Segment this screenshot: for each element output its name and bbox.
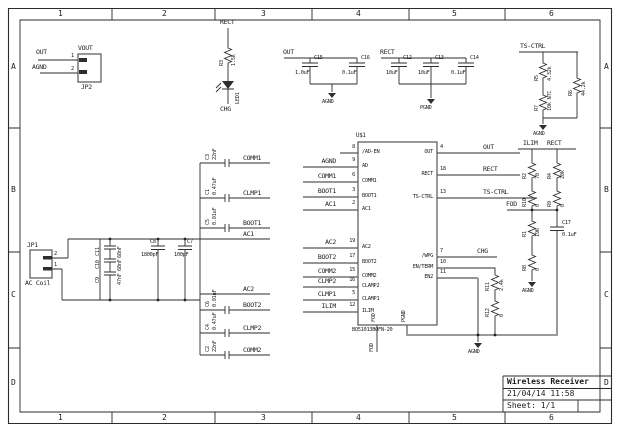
ic-pin-name: AC2	[362, 245, 371, 250]
cap-value-c5: 0.01uF	[213, 208, 218, 225]
gnd-label-agnd: AGND	[322, 100, 334, 105]
cap-ref-c8: C8	[150, 240, 156, 245]
pin-number: 17	[341, 254, 355, 259]
pin-number: 4	[440, 145, 443, 150]
net-label-out: OUT	[36, 49, 47, 56]
ic-pin-name: OUT	[385, 150, 433, 155]
net-label-agnd: AGND	[32, 64, 46, 71]
cap-ref-c10: C10	[96, 260, 101, 269]
resistor-ref-r9: R9	[548, 201, 553, 207]
net-label-rect: RECT	[547, 140, 561, 147]
cap-value-c3: 22nF	[213, 148, 218, 160]
pin-number: 3	[341, 188, 355, 193]
frame-row-label: D	[604, 379, 609, 387]
gnd-label-agnd: AGND	[533, 132, 545, 137]
ic-ref: U$1	[356, 134, 366, 140]
resistor-value-r9: 0	[561, 204, 566, 207]
resistor-ref-r12: R12	[486, 308, 491, 317]
net-label-out: OUT	[283, 49, 294, 56]
ic-pin-name: COMM2	[362, 274, 376, 279]
net-label-boot2: BOOT2	[296, 254, 336, 261]
frame-row-label: B	[604, 186, 609, 194]
cap-value-c10: 68nF	[118, 259, 123, 271]
cap-ref-c3: C3	[206, 154, 211, 160]
ic-pin-name: CLAMP2	[362, 284, 379, 289]
resistor-value-r5: 4.32k	[548, 67, 553, 81]
led-symbol	[222, 81, 234, 89]
net-label-rect: RECT	[220, 19, 234, 26]
pin-number: 13	[440, 190, 446, 195]
net-label-fod: FOD	[370, 343, 375, 352]
cap-value-c7: 100pF	[174, 253, 188, 258]
pin-number: 2	[71, 67, 74, 72]
led-ref-led1: LED1	[236, 92, 241, 104]
net-label-rect: RECT	[483, 166, 497, 173]
cap-value-c17: 0.1uF	[562, 233, 576, 238]
title-block-title: Wireless Receiver	[507, 378, 589, 386]
pin-number: 19	[341, 239, 355, 244]
net-label-ac2: AC2	[243, 286, 254, 293]
schematic-sheet: 1 2 3 4 5 6 1 2 3 4 5 6 A B C D A B C D …	[0, 0, 619, 431]
cap-ref-c17: C17	[562, 221, 571, 226]
pin-number: 1	[54, 263, 57, 268]
cap-ref-c1: C1	[206, 189, 211, 195]
gnd-label-agnd: AGND	[468, 350, 480, 355]
cap-ref-c14: C14	[470, 56, 479, 61]
net-label-comm1: COMM1	[296, 173, 336, 180]
pin-number: 16	[341, 278, 355, 283]
net-label-out: OUT	[483, 144, 494, 151]
connector-ref-jp1: JP1	[27, 242, 38, 249]
cap-ref-c7: C7	[187, 240, 193, 245]
resistor-value-r3: 1.5k	[232, 54, 237, 66]
net-label-clmp1: CLMP1	[243, 190, 261, 197]
resistor-ref-r10: R10	[523, 198, 528, 207]
resistor-ref-r4: R4	[548, 173, 553, 179]
net-label-ac1: AC1	[243, 231, 254, 238]
cap-ref-c2: C2	[206, 346, 211, 352]
ic-pin-name: COMM1	[362, 179, 376, 184]
frame-row-label: A	[11, 63, 16, 71]
pin-number: 11	[440, 270, 446, 275]
resistor-ref-r11: R11	[486, 282, 491, 291]
frame-col-label: 2	[162, 414, 167, 422]
pin-number: 7	[440, 249, 443, 254]
resistor-value-r10: 0	[536, 204, 541, 207]
pin-number: 5	[341, 291, 355, 296]
frame-col-label: 2	[162, 10, 167, 18]
cap-value-c14: 0.1uF	[451, 71, 465, 76]
cap-ref-c13: C13	[435, 56, 444, 61]
cap-ref-c9: C9	[96, 277, 101, 283]
frame-col-label: 3	[261, 414, 266, 422]
resistor-ref-r6: R6	[569, 90, 574, 96]
net-label-clmp2: CLMP2	[296, 278, 336, 285]
net-label-ts-ctrl: TS-CTRL	[520, 43, 545, 50]
net-label-clmp2: CLMP2	[243, 325, 261, 332]
cap-value-c12: 10uF	[386, 71, 398, 76]
gnd-label-agnd: AGND	[522, 289, 534, 294]
net-label-ilim: ILIM	[296, 303, 336, 310]
cap-ref-c12: C12	[403, 56, 412, 61]
cap-value-c6: 0.01uF	[213, 290, 218, 307]
resistor-value-r2: 70	[536, 173, 541, 179]
net-label-agnd: AGND	[296, 158, 336, 165]
cap-ref-c5: C5	[206, 219, 211, 225]
ic-pin-name: CLAMP1	[362, 297, 379, 302]
schematic-graphics	[0, 0, 619, 431]
resistor-ref-r7: R7	[535, 105, 540, 111]
pin-number: 10	[440, 260, 446, 265]
ic-pin-name: AC1	[362, 207, 371, 212]
net-label-fod: FOD	[506, 201, 517, 208]
connector-ref-jp2: JP2	[81, 84, 92, 91]
resistor-value-r11: 2.4k	[500, 279, 505, 291]
frame-col-label: 5	[452, 414, 457, 422]
cap-value-c11: 68nF	[118, 246, 123, 258]
resistor-ref-r3: R3	[220, 60, 225, 66]
pin-number: 6	[341, 173, 355, 178]
pin-number: 2	[341, 201, 355, 206]
ic-pin-name: EN2	[385, 275, 433, 280]
net-label-ilim: ILIM	[523, 140, 537, 147]
frame-col-label: 6	[549, 10, 554, 18]
resistor-value-r1: 196	[536, 228, 541, 237]
net-label-vout: VOUT	[78, 45, 92, 52]
ic-pin-name: TS-CTRL	[385, 195, 433, 200]
title-block-sheet: Sheet: 1/1	[507, 402, 555, 410]
pin-number: 8	[341, 145, 355, 150]
frame-row-label: B	[11, 186, 16, 194]
resistor-ref-r5: R5	[535, 75, 540, 81]
frame-col-label: 6	[549, 414, 554, 422]
resistor-ref-r1: R1	[523, 231, 528, 237]
frame-col-label: 1	[58, 414, 63, 422]
net-label-comm2: COMM2	[296, 268, 336, 275]
ic-pin-name: AD	[362, 164, 368, 169]
frame-row-label: C	[11, 291, 16, 299]
net-label-rect: RECT	[380, 49, 394, 56]
cap-value-c16: 0.1uF	[342, 71, 356, 76]
cap-ref-c11: C11	[96, 247, 101, 256]
resistor-value-r6: 44.2k	[582, 82, 587, 96]
pin-number: 12	[341, 303, 355, 308]
gnd-label-pgnd: PGND	[420, 106, 432, 111]
connector-label-ac-coil: AC Coil	[25, 280, 50, 287]
frame-col-label: 1	[58, 10, 63, 18]
cap-value-c8: 1800pF	[141, 253, 158, 258]
frame-col-label: 5	[452, 10, 457, 18]
cap-value-c2: 22nF	[213, 340, 218, 352]
cap-ref-c15: C15	[314, 56, 323, 61]
net-label-boot1: BOOT1	[243, 220, 261, 227]
cap-value-c15: 1.0uF	[295, 71, 309, 76]
ic-pin-name: /WPG	[385, 254, 433, 259]
ic-part-number: BQ51013BQFN-20	[352, 328, 392, 333]
frame-col-label: 4	[356, 10, 361, 18]
ic-pin-name: BOOT2	[362, 260, 376, 265]
net-label-comm2: COMM2	[243, 347, 261, 354]
resistor-ref-r8: R8	[523, 265, 528, 271]
net-label-comm1: COMM1	[243, 155, 261, 162]
net-label-ts-ctrl: TS-CTRL	[483, 189, 508, 196]
resistor-value-r7: 10k NTC	[548, 91, 553, 111]
resistor-ref-r2: R2	[523, 173, 528, 179]
pin-number: 18	[440, 167, 446, 172]
resistor-value-r4: 20k	[561, 170, 566, 179]
frame-row-label: C	[604, 291, 609, 299]
frame-row-label: A	[604, 63, 609, 71]
pin-number: 15	[341, 268, 355, 273]
ic-pin-name: EN/TERM	[385, 265, 433, 270]
resistor-value-r12: 0	[500, 314, 505, 317]
cap-value-c13: 10uF	[418, 71, 430, 76]
frame-row-label: D	[11, 379, 16, 387]
resistor-value-r8: 0	[536, 268, 541, 271]
ic-pin-name: /AD-EN	[362, 150, 379, 155]
cap-ref-c6: C6	[206, 301, 211, 307]
cap-value-c1: 0.47uF	[213, 178, 218, 195]
ic-pin-name: FOD	[372, 313, 377, 322]
net-label-ac1: AC1	[296, 201, 336, 208]
cap-value-c4: 0.47uF	[213, 313, 218, 330]
frame-col-label: 4	[356, 414, 361, 422]
net-label-boot1: BOOT1	[296, 188, 336, 195]
pin-number: 1	[71, 54, 74, 59]
pin-number: 2	[54, 252, 57, 257]
ic-pin-name: RECT	[385, 172, 433, 177]
cap-value-c9: 47nF	[118, 273, 123, 285]
net-label-ac2: AC2	[296, 239, 336, 246]
net-label-boot2: BOOT2	[243, 302, 261, 309]
pin-number: 9	[341, 158, 355, 163]
ic-pin-name: BOOT1	[362, 194, 376, 199]
frame-col-label: 3	[261, 10, 266, 18]
title-block-date: 21/04/14 11:58	[507, 390, 574, 398]
cap-ref-c16: C16	[361, 56, 370, 61]
net-label-chg: CHG	[477, 248, 488, 255]
ic-pin-name: PGND	[402, 310, 407, 322]
net-label-clmp1: CLMP1	[296, 291, 336, 298]
cap-ref-c4: C4	[206, 324, 211, 330]
net-label-chg: CHG	[220, 106, 231, 113]
